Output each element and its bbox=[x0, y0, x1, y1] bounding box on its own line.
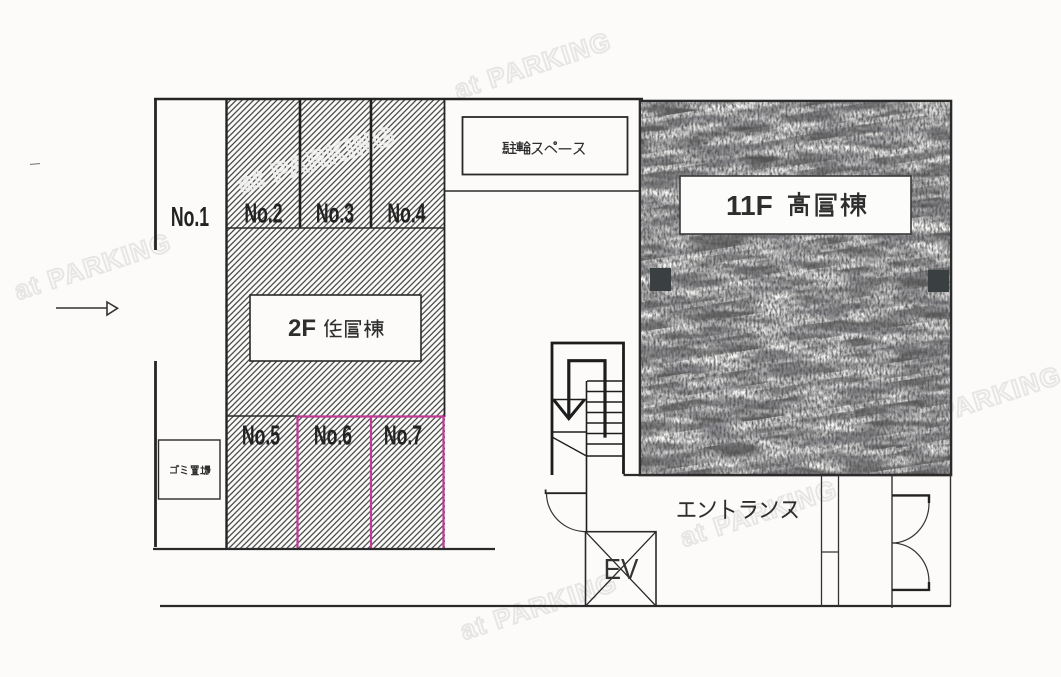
svg-text:No.1: No.1 bbox=[171, 201, 209, 232]
svg-text:2F: 2F bbox=[288, 315, 316, 342]
svg-text:No.3: No.3 bbox=[316, 197, 354, 228]
svg-text:No.5: No.5 bbox=[242, 419, 280, 450]
svg-text:EV: EV bbox=[604, 553, 639, 586]
svg-text:11F: 11F bbox=[726, 190, 773, 221]
svg-text:No.6: No.6 bbox=[314, 419, 352, 450]
svg-text:No.2: No.2 bbox=[244, 197, 282, 228]
svg-text:No.7: No.7 bbox=[384, 419, 422, 450]
svg-text:No.4: No.4 bbox=[387, 197, 425, 228]
